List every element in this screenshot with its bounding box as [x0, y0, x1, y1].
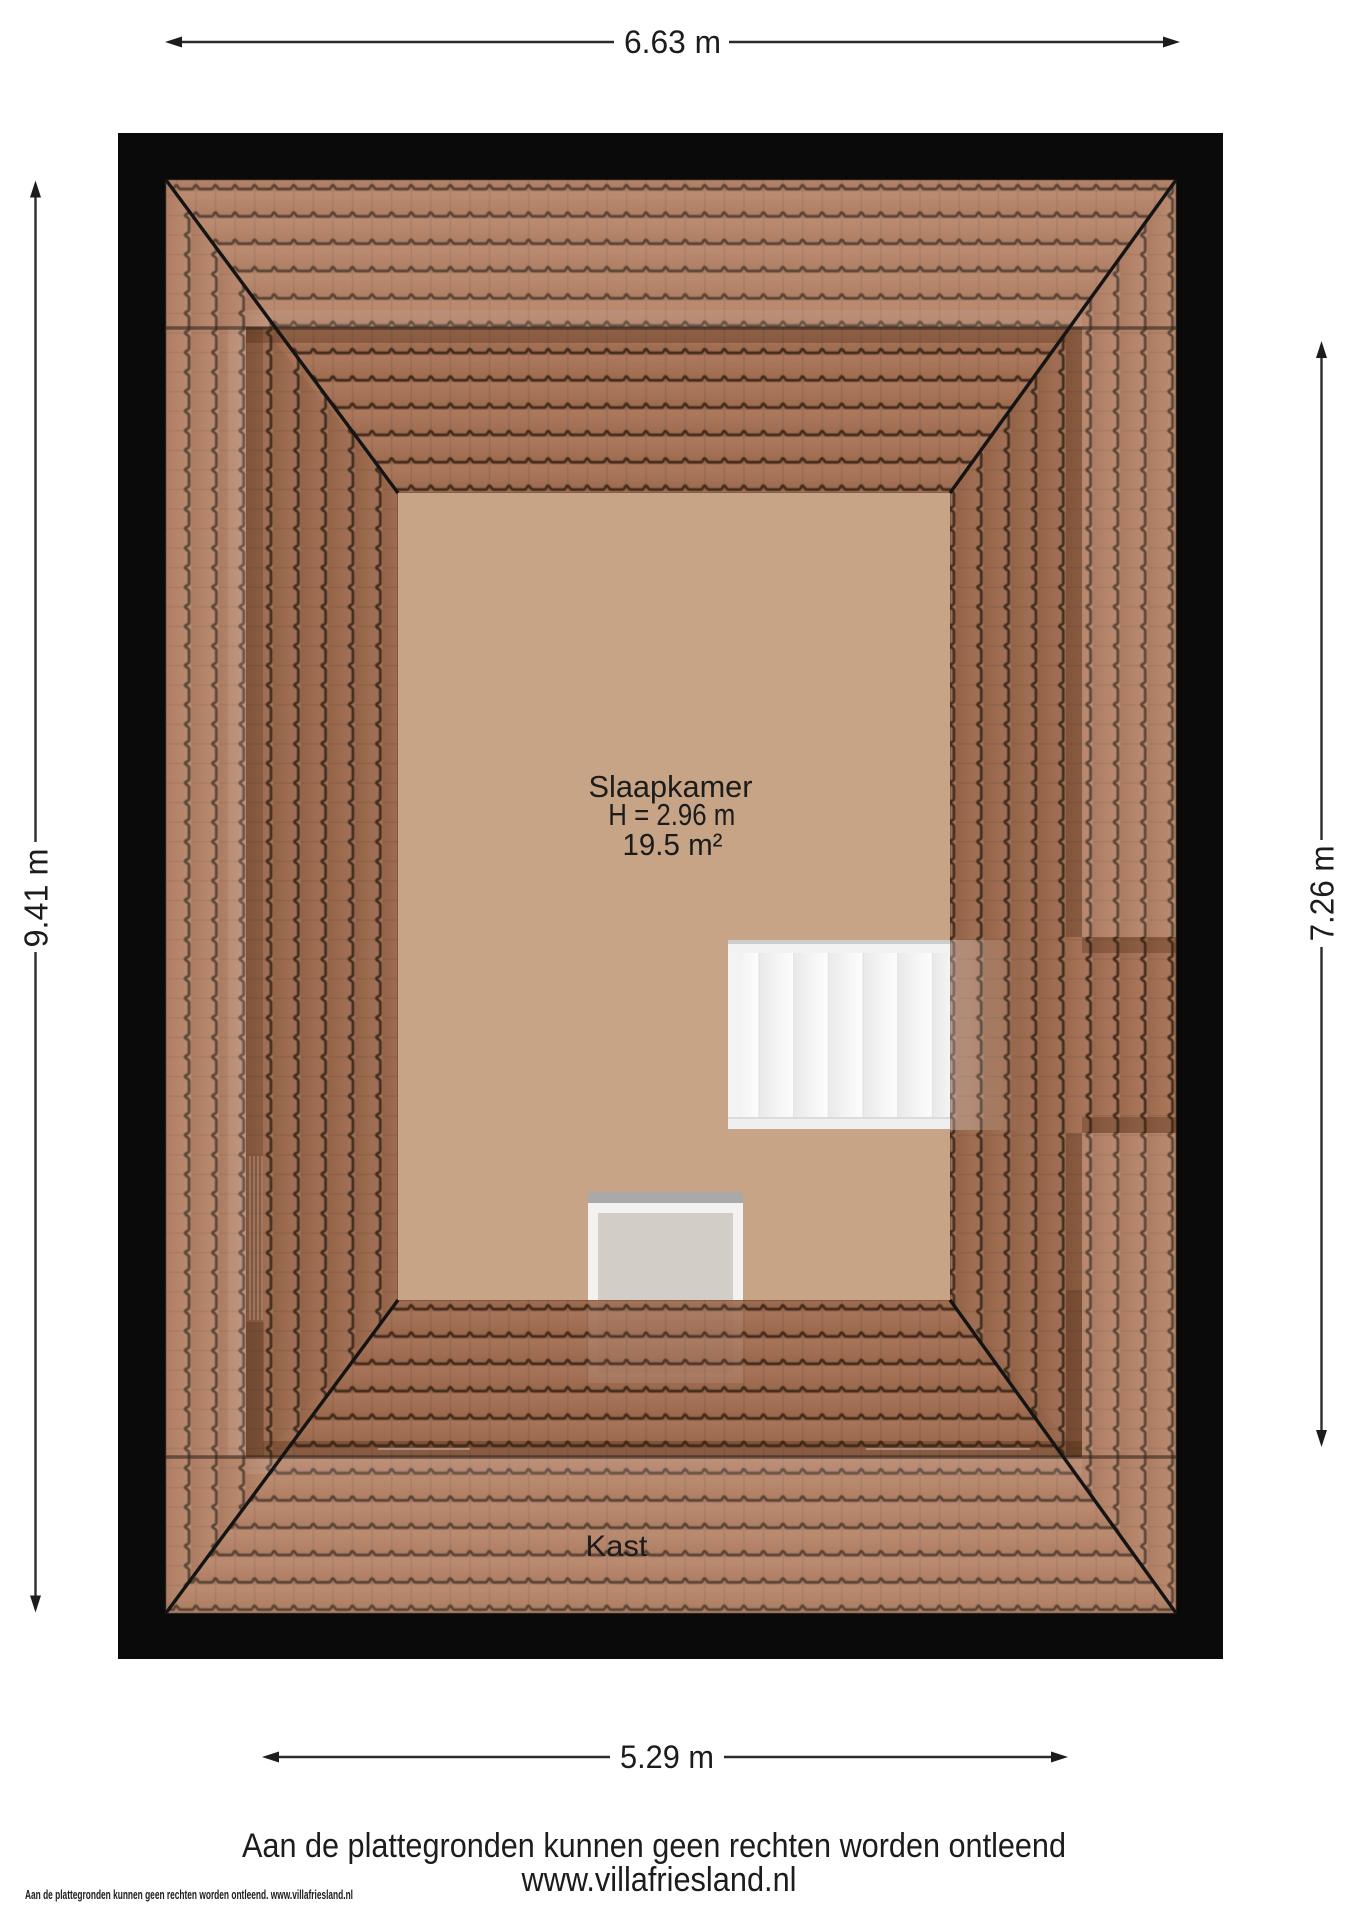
svg-text:Aan de plattegronden kunnen ge: Aan de plattegronden kunnen geen rechten…: [242, 1827, 1066, 1865]
svg-text:Aan de plattegronden kunnen ge: Aan de plattegronden kunnen geen rechten…: [25, 1887, 353, 1902]
svg-text:Kast: Kast: [586, 1530, 649, 1563]
svg-text:7.26 m: 7.26 m: [1303, 845, 1340, 941]
svg-text:19.5 m²: 19.5 m²: [623, 827, 723, 862]
svg-text:www.villafriesland.nl: www.villafriesland.nl: [521, 1861, 797, 1899]
svg-text:5.29 m: 5.29 m: [620, 1739, 714, 1775]
svg-text:6.63 m: 6.63 m: [624, 24, 721, 60]
svg-text:9.41 m: 9.41 m: [18, 849, 55, 948]
